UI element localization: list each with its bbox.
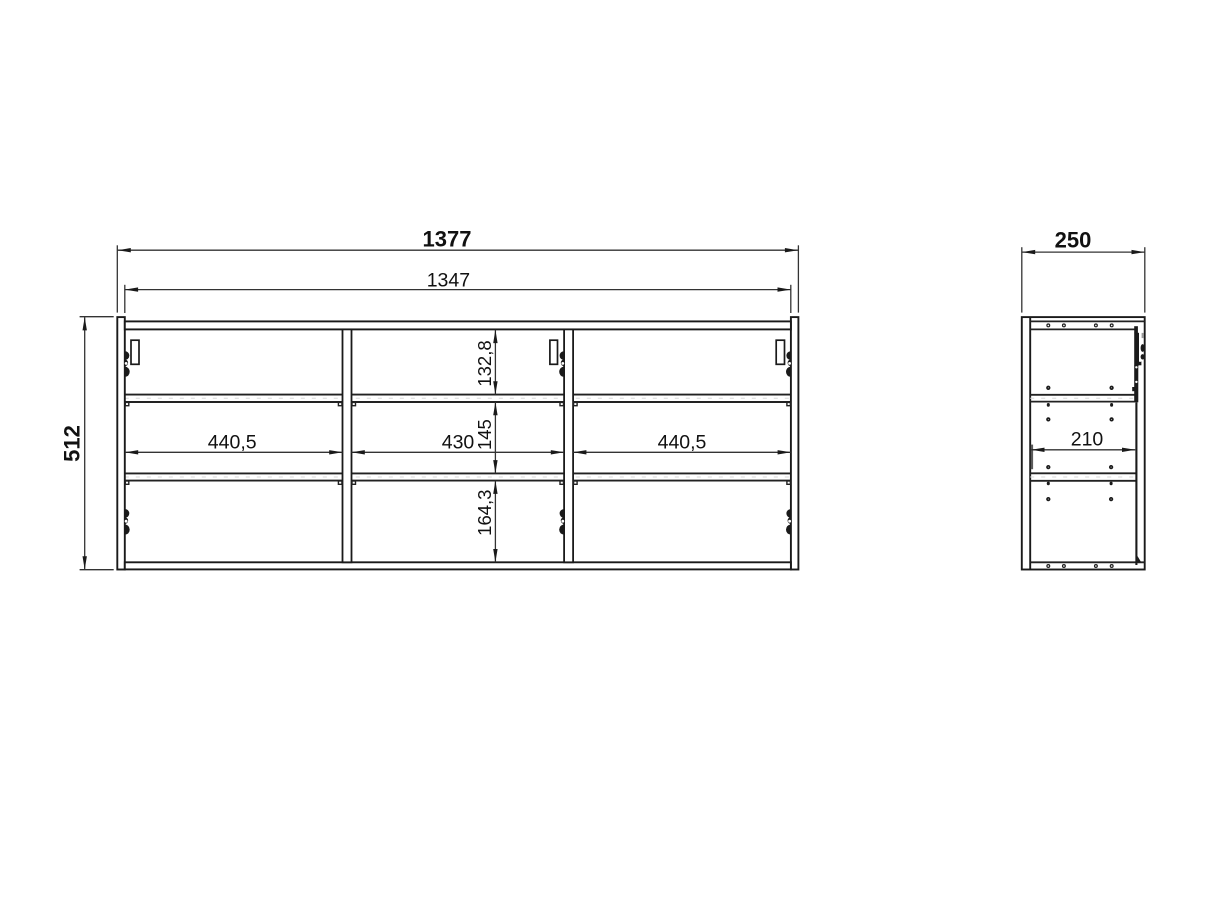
svg-text:440,5: 440,5: [658, 432, 707, 454]
svg-text:440,5: 440,5: [208, 432, 257, 454]
svg-text:145: 145: [474, 419, 495, 450]
svg-text:164,3: 164,3: [474, 490, 495, 536]
svg-text:132,8: 132,8: [474, 340, 495, 386]
svg-text:1347: 1347: [427, 269, 470, 291]
svg-text:210: 210: [1071, 428, 1104, 450]
svg-text:512: 512: [59, 425, 84, 462]
svg-text:430: 430: [442, 432, 475, 454]
svg-text:250: 250: [1055, 228, 1092, 253]
svg-text:1377: 1377: [423, 226, 472, 251]
